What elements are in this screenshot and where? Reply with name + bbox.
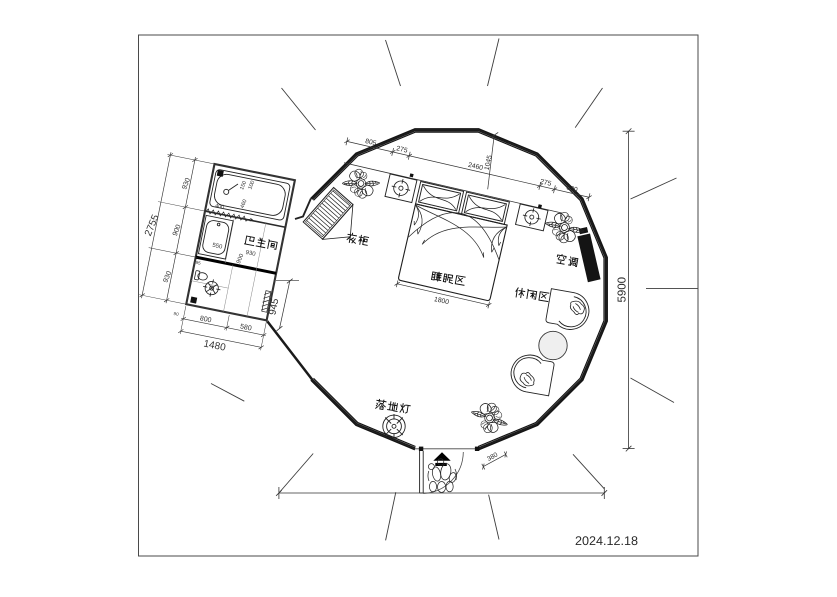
svg-text:2024.12.18: 2024.12.18 [575,534,638,548]
svg-text:5900: 5900 [616,277,628,303]
